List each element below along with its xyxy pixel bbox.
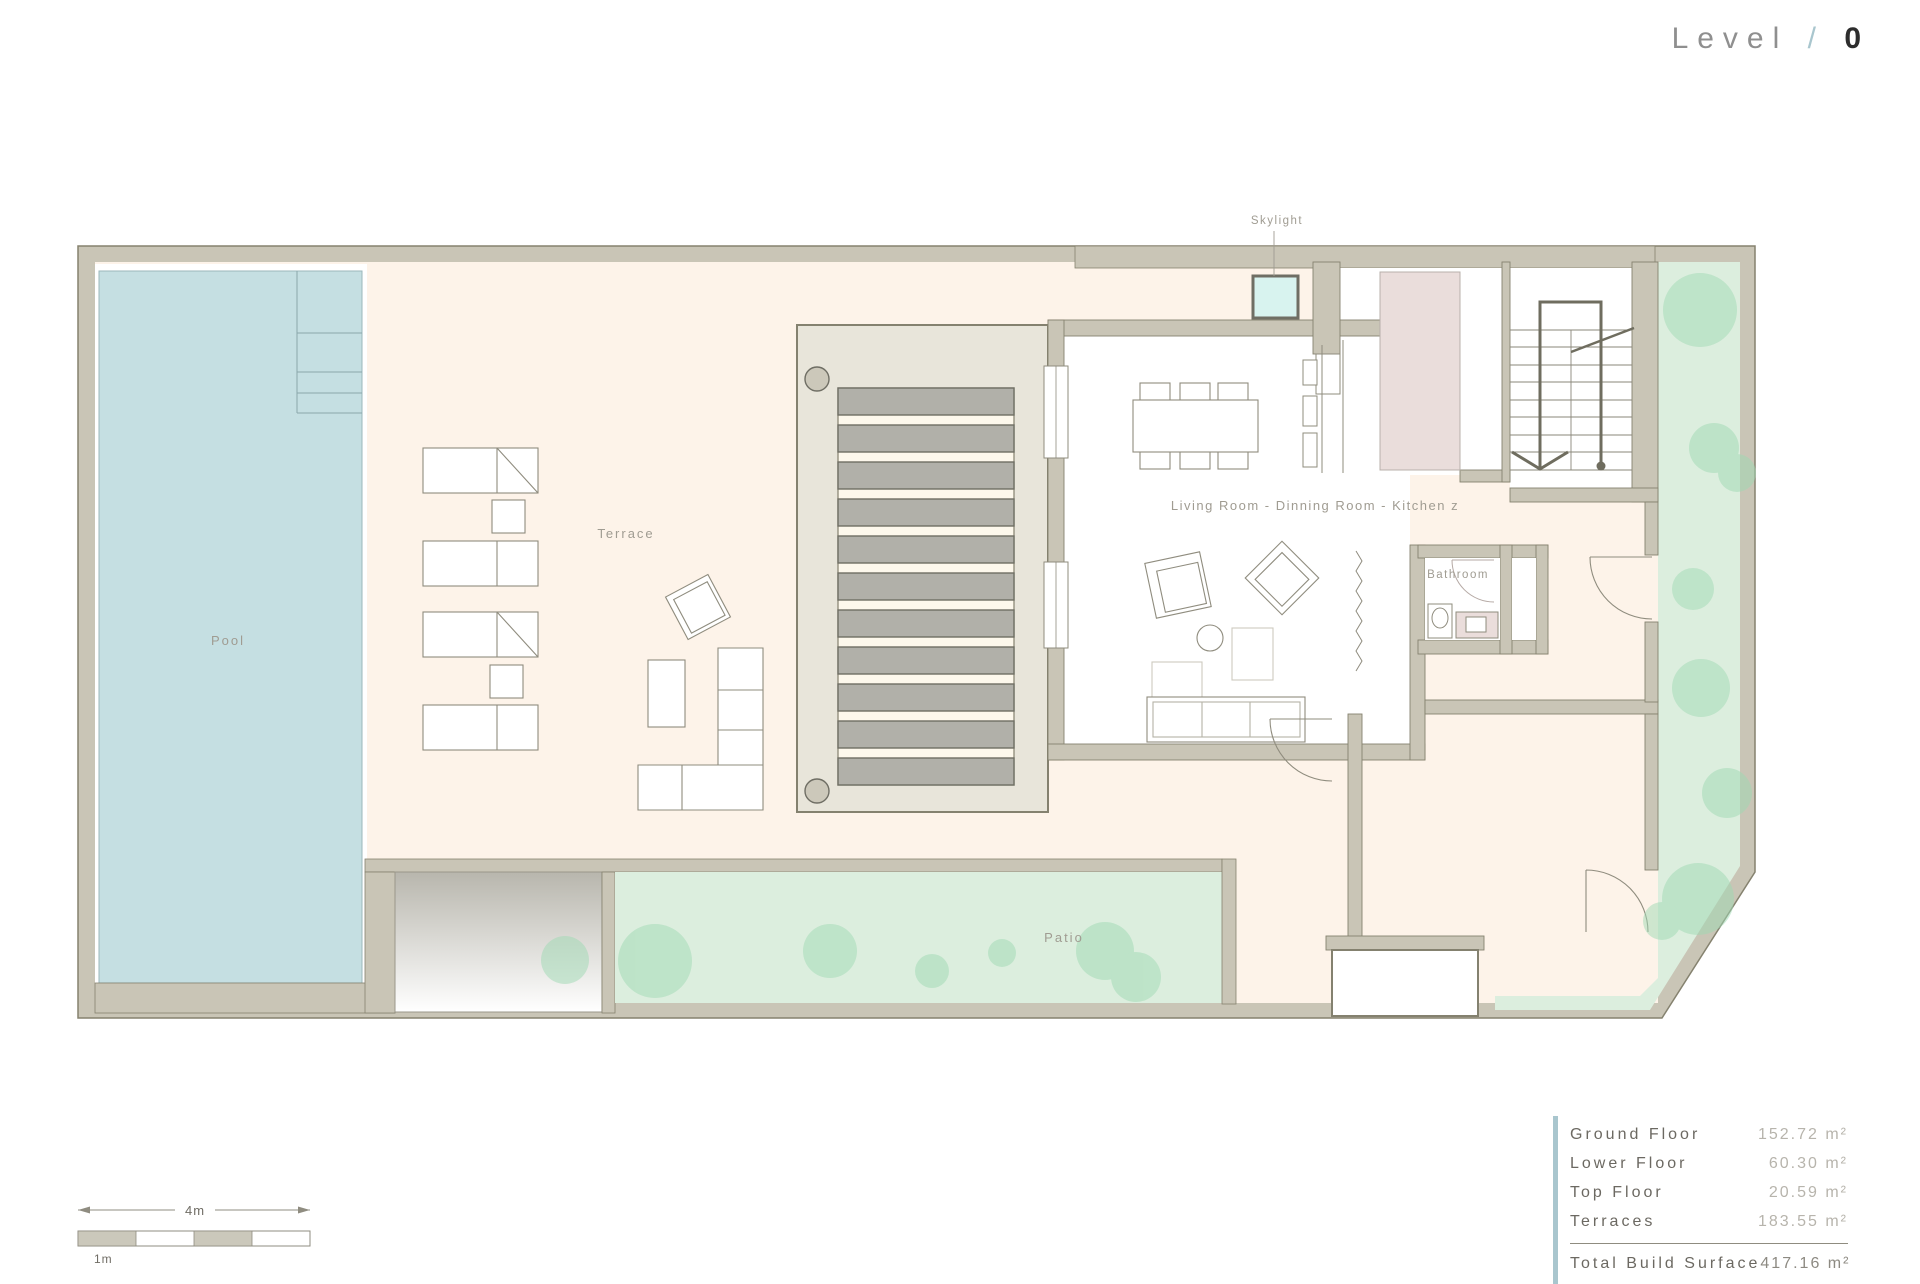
pergola [797, 325, 1048, 812]
bar-stools [1303, 360, 1317, 467]
pool-label: Pool [211, 633, 245, 648]
summary-value: 20.59 m² [1769, 1184, 1848, 1202]
summary-label: Lower Floor [1570, 1155, 1687, 1173]
floor-plan: Skylight Pool Terrace Living Room - Dinn… [0, 0, 1920, 1280]
kitchen-island [1380, 272, 1460, 470]
summary-row: Top Floor 20.59 m² [1570, 1178, 1848, 1207]
patio-label: Patio [1044, 930, 1084, 945]
summary-label: Terraces [1570, 1213, 1655, 1231]
summary-value: 183.55 m² [1758, 1213, 1848, 1231]
armchair [1145, 552, 1211, 618]
annex-room [1332, 950, 1478, 1016]
toilet [1428, 604, 1452, 638]
level-number: 0 [1844, 22, 1870, 55]
side-table [490, 665, 523, 698]
scale-span-label: 4m [185, 1203, 205, 1218]
summary-label: Ground Floor [1570, 1126, 1700, 1144]
scale-bar: 4m 1m [70, 1193, 340, 1273]
skylight-label: Skylight [1251, 215, 1303, 227]
dining-table [1133, 400, 1258, 452]
summary-total-value: 417.16 m² [1760, 1255, 1850, 1273]
pergola-post [805, 779, 829, 803]
living-room-label: Living Room - Dinning Room - Kitchen z [1171, 498, 1459, 513]
side-table [1197, 625, 1223, 651]
bathroom-label: Bathroom [1427, 569, 1489, 581]
summary-row: Lower Floor 60.30 m² [1570, 1149, 1848, 1178]
area-summary-table: Ground Floor 152.72 m² Lower Floor 60.30… [1553, 1116, 1848, 1284]
pergola-post [805, 367, 829, 391]
level-word: Level [1672, 22, 1789, 55]
pergola-slats [838, 388, 1014, 785]
arrow-left [78, 1207, 90, 1214]
summary-row: Ground Floor 152.72 m² [1570, 1120, 1848, 1149]
sink [1466, 617, 1486, 632]
summary-row: Terraces 183.55 m² [1570, 1207, 1848, 1236]
level-separator: / [1806, 22, 1827, 55]
scale-unit-label: 1m [94, 1252, 113, 1266]
summary-label: Top Floor [1570, 1184, 1664, 1202]
outdoor-table [648, 660, 685, 727]
side-table [492, 500, 525, 533]
summary-total-row: Total Build Surface 417.16 m² [1570, 1249, 1848, 1278]
skylight [1253, 276, 1298, 318]
summary-total-label: Total Build Surface [1570, 1255, 1760, 1273]
arrow-right [298, 1207, 310, 1214]
summary-value: 60.30 m² [1769, 1155, 1848, 1173]
summary-divider [1570, 1243, 1848, 1244]
page-title: Level / 0 [1672, 22, 1870, 56]
top-wall [1075, 246, 1655, 268]
summary-value: 152.72 m² [1758, 1126, 1848, 1144]
terrace-label: Terrace [597, 526, 654, 541]
